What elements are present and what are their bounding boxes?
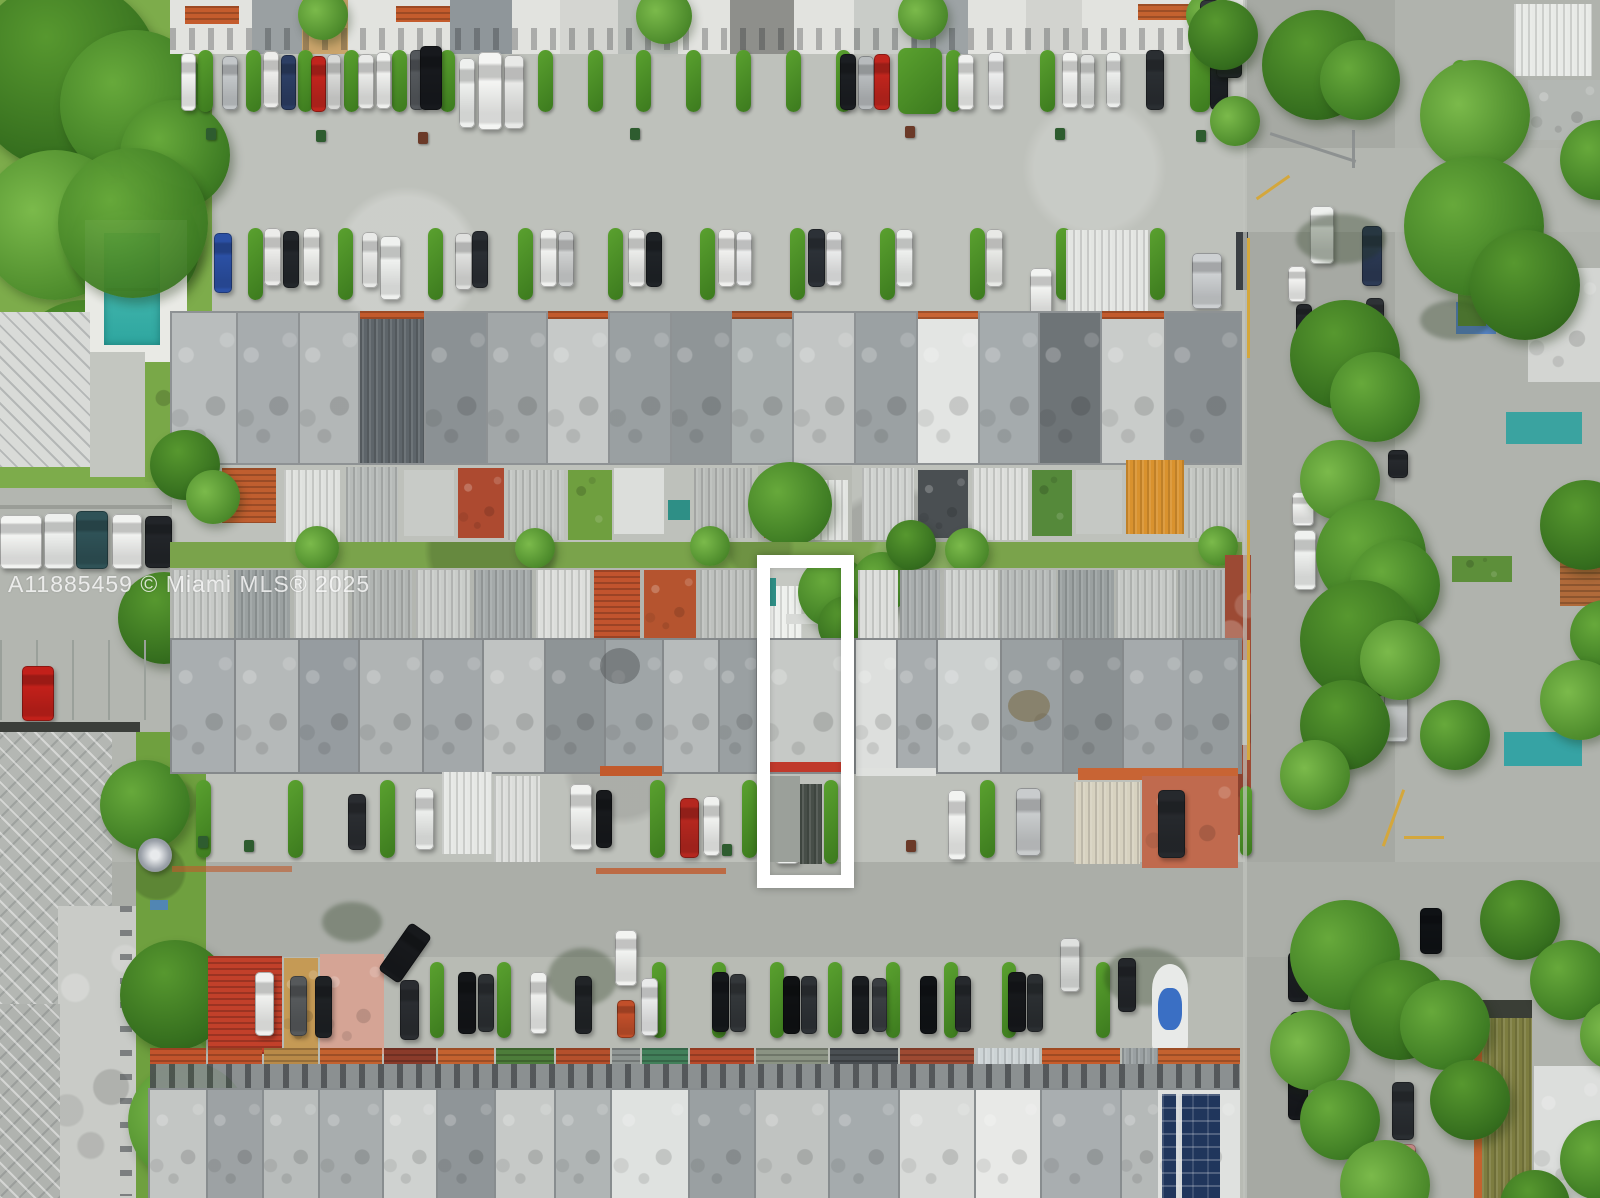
tree — [1280, 740, 1350, 810]
roof — [980, 313, 1038, 463]
car — [112, 514, 142, 569]
yard-structure — [346, 467, 398, 543]
tree — [945, 528, 989, 572]
hedge — [828, 962, 842, 1038]
roof — [424, 640, 482, 772]
roof — [1064, 640, 1122, 772]
hedge — [742, 780, 757, 858]
roof — [300, 313, 358, 463]
roof — [720, 640, 756, 772]
car — [617, 1000, 635, 1038]
roof — [732, 313, 792, 463]
roof — [756, 1090, 828, 1198]
car — [986, 229, 1003, 287]
hedge — [970, 228, 985, 300]
car — [504, 55, 524, 129]
tree — [748, 462, 832, 546]
roof — [172, 640, 234, 772]
car — [558, 231, 574, 287]
yard-structure — [972, 468, 1028, 540]
car — [303, 228, 320, 286]
carport-tan — [1074, 782, 1140, 864]
roof — [320, 1090, 382, 1198]
tile-roof-strip — [384, 1048, 436, 1064]
tile-roof-strip — [438, 1048, 494, 1064]
car — [712, 972, 729, 1032]
hedge — [440, 50, 455, 112]
car — [703, 796, 720, 856]
roof — [664, 640, 718, 772]
roof — [856, 640, 896, 772]
curb-shadow — [0, 722, 140, 732]
car — [826, 231, 842, 286]
tile-roof-strip — [360, 311, 424, 319]
hedge — [980, 780, 995, 858]
car — [311, 56, 326, 112]
tree — [690, 526, 730, 566]
solar-gap — [1176, 1094, 1182, 1198]
yard-structure — [944, 570, 998, 638]
car — [376, 52, 391, 109]
tile-roof-strip — [732, 311, 792, 319]
yellow-shed — [1126, 460, 1184, 534]
car — [400, 980, 419, 1040]
eave-strip — [856, 768, 936, 776]
tree — [886, 520, 936, 570]
car — [327, 54, 341, 110]
roof — [900, 1090, 974, 1198]
tree — [1330, 352, 1420, 442]
yard-structure — [536, 570, 590, 638]
car — [263, 51, 279, 108]
carport — [1066, 230, 1148, 322]
car — [1062, 52, 1078, 108]
tile-roof-strip — [830, 1048, 898, 1064]
tile-roof-strip — [918, 311, 978, 319]
tarp — [150, 900, 168, 910]
roof — [1042, 1090, 1120, 1198]
tile-roof-strip — [976, 1048, 1040, 1064]
car — [22, 666, 54, 721]
roof — [150, 1090, 206, 1198]
car — [718, 229, 735, 287]
hedge — [538, 50, 553, 112]
roof — [236, 640, 298, 772]
roof — [1040, 313, 1100, 463]
car — [380, 236, 401, 300]
yard-structure — [1076, 470, 1122, 534]
terracotta-pad — [1142, 776, 1238, 868]
hedge — [608, 228, 623, 300]
hedge — [1040, 50, 1055, 112]
yard-structure — [668, 500, 690, 520]
tree-shadow — [1296, 214, 1386, 264]
car — [840, 54, 856, 110]
curb-paint — [596, 868, 726, 874]
yard-structure — [858, 570, 898, 638]
trash-bin — [722, 844, 732, 856]
roof — [264, 1090, 318, 1198]
tile-roof-strip — [208, 1048, 262, 1064]
hedge — [700, 228, 715, 300]
car — [348, 794, 366, 850]
yard-green — [1032, 470, 1072, 536]
hedge — [428, 228, 443, 300]
car — [530, 972, 547, 1034]
yard-structure — [614, 468, 664, 534]
trash-bin — [630, 128, 640, 140]
roof — [426, 313, 486, 463]
tile-roof-strip — [548, 311, 608, 319]
boat-cover — [1158, 988, 1182, 1030]
roof — [938, 640, 1000, 772]
car — [948, 790, 966, 860]
car — [458, 972, 476, 1034]
tree — [58, 148, 208, 298]
car — [680, 798, 699, 858]
yard-green — [568, 470, 612, 540]
tile-roof-strip — [1102, 311, 1164, 319]
tree — [1320, 40, 1400, 120]
trash-bin — [206, 128, 216, 140]
yellow-curb — [1404, 836, 1444, 839]
hedge-strip — [1452, 556, 1512, 582]
hedge — [886, 962, 900, 1038]
tile-roof-strip — [1158, 1048, 1240, 1064]
tile-roof-strip — [600, 766, 662, 776]
car — [459, 58, 475, 128]
car — [1420, 908, 1442, 954]
car — [214, 233, 232, 293]
car — [730, 974, 746, 1032]
hedge — [898, 48, 942, 114]
car — [1118, 958, 1136, 1012]
roof — [496, 1090, 554, 1198]
hedge — [246, 50, 261, 112]
yard-structure — [1116, 570, 1176, 638]
car — [628, 229, 645, 287]
tile-roof-strip — [320, 1048, 382, 1064]
roof — [488, 313, 546, 463]
car — [596, 790, 612, 848]
roof — [208, 1090, 262, 1198]
car — [920, 976, 937, 1034]
tree — [1430, 1060, 1510, 1140]
carport — [442, 772, 492, 854]
tile-roof-strip — [396, 6, 450, 22]
roof — [1124, 640, 1182, 772]
car — [472, 231, 488, 288]
trash-bin — [906, 840, 916, 852]
aerial-photo: A11885459 © Miami MLS® 2025 — [0, 0, 1600, 1198]
car — [1288, 266, 1306, 302]
roof-stain — [1008, 690, 1050, 722]
hedge — [288, 780, 303, 858]
tree — [1420, 700, 1490, 770]
tree — [295, 526, 339, 570]
tile-roof-strip — [756, 1048, 828, 1064]
tile-roof-strip — [900, 1048, 974, 1064]
car — [1027, 974, 1043, 1032]
car — [858, 56, 874, 110]
yard-structure — [644, 570, 696, 638]
tile-roof-strip — [612, 1048, 640, 1064]
roof — [612, 1090, 688, 1198]
hedge — [786, 50, 801, 112]
roof — [1102, 313, 1164, 463]
white-corrugated-building — [1514, 4, 1592, 76]
tree — [1530, 940, 1600, 1020]
hedge — [686, 50, 701, 112]
trash-bin — [905, 126, 915, 138]
car — [44, 513, 74, 569]
car — [1388, 450, 1408, 478]
carport — [494, 776, 540, 862]
tile-roof-strip — [1042, 1048, 1120, 1064]
tree — [515, 528, 555, 568]
roof-stain — [600, 648, 640, 684]
roof — [794, 313, 854, 463]
car — [988, 52, 1004, 110]
roof — [484, 640, 544, 772]
curb-paint — [172, 866, 292, 872]
trash-bin — [1055, 128, 1065, 140]
car — [358, 54, 374, 109]
hedge — [770, 962, 784, 1038]
car — [570, 784, 592, 850]
yard-structure — [1058, 570, 1114, 638]
car — [290, 976, 307, 1036]
car — [315, 976, 332, 1038]
hedge — [430, 962, 444, 1038]
roof — [384, 1090, 436, 1198]
hedge — [344, 50, 359, 112]
tree-shadow — [322, 902, 382, 942]
car — [955, 976, 971, 1032]
trash-bin — [198, 836, 208, 848]
car — [455, 233, 472, 290]
teal-canopy — [1506, 412, 1582, 444]
hedge — [588, 50, 603, 112]
tree — [186, 470, 240, 524]
car — [783, 976, 800, 1034]
car — [736, 231, 752, 286]
roof — [556, 1090, 610, 1198]
hedge — [790, 228, 805, 300]
car — [575, 976, 592, 1034]
hedge — [248, 228, 263, 300]
tile-roof-strip — [150, 1048, 206, 1064]
car — [181, 53, 196, 111]
hedge — [392, 50, 407, 112]
trash-bin — [418, 132, 428, 144]
car — [1106, 52, 1121, 108]
roof — [690, 1090, 754, 1198]
car — [478, 974, 494, 1032]
car — [872, 978, 887, 1032]
curb — [0, 505, 172, 509]
roof — [300, 640, 358, 772]
yellow-curb — [1247, 640, 1250, 760]
car — [896, 229, 913, 287]
car — [1192, 253, 1222, 309]
tree — [1210, 96, 1260, 146]
tile-roof-strip — [556, 1048, 610, 1064]
car — [478, 52, 502, 130]
yard-structure — [900, 570, 940, 638]
tile-roof-strip — [185, 6, 239, 24]
roof — [918, 313, 978, 463]
roof — [360, 640, 422, 772]
roof — [610, 313, 670, 463]
car — [0, 515, 42, 569]
yellow-curb — [1247, 238, 1250, 358]
hedge — [636, 50, 651, 112]
roof — [672, 313, 730, 463]
tree — [1470, 230, 1580, 340]
roof — [898, 640, 936, 772]
yard-structure — [1000, 570, 1056, 638]
roof — [830, 1090, 898, 1198]
yard-structure — [404, 470, 454, 536]
car — [1146, 50, 1164, 110]
yard-structure — [458, 468, 504, 538]
hedge — [736, 50, 751, 112]
yellow-curb — [1247, 520, 1250, 600]
roof — [1166, 313, 1240, 463]
hedge — [198, 50, 213, 112]
yard-structure — [594, 570, 640, 638]
roof — [438, 1090, 494, 1198]
car — [1008, 972, 1026, 1032]
roof — [856, 313, 916, 463]
apartment-windows — [120, 906, 132, 1196]
walkway — [90, 352, 145, 477]
hedge — [650, 780, 665, 858]
roof — [548, 313, 608, 463]
clubhouse-roof — [0, 312, 90, 467]
street-light-pole — [1352, 130, 1355, 168]
hedge — [497, 962, 511, 1038]
mls-watermark: A11885459 © Miami MLS® 2025 — [8, 571, 370, 598]
roof — [546, 640, 604, 772]
trash-bin — [316, 130, 326, 142]
car — [145, 516, 172, 568]
yard-structure — [416, 570, 470, 638]
tree — [1400, 980, 1490, 1070]
car — [76, 511, 108, 569]
car — [281, 55, 296, 110]
roof — [1122, 1090, 1158, 1198]
property-highlight-rectangle — [757, 555, 854, 888]
roof — [1184, 640, 1238, 772]
apartment-roof-lower — [0, 1004, 60, 1198]
tree — [1270, 1010, 1350, 1090]
roof — [238, 313, 298, 463]
car — [646, 232, 662, 287]
tile-roof-strip — [496, 1048, 554, 1064]
car — [958, 54, 974, 110]
car — [641, 978, 658, 1036]
car — [420, 46, 442, 110]
car — [362, 232, 378, 288]
hedge — [338, 228, 353, 300]
hedge — [880, 228, 895, 300]
tree — [1420, 60, 1530, 170]
roof — [976, 1090, 1040, 1198]
tile-roof-strip — [1122, 1048, 1158, 1064]
car — [801, 976, 817, 1034]
car — [264, 228, 281, 286]
facade-band — [150, 1064, 1240, 1090]
trash-bin — [244, 840, 254, 852]
patio-umbrella — [138, 838, 172, 872]
car — [1158, 790, 1185, 858]
tile-roof-strip — [690, 1048, 754, 1064]
yard-structure — [474, 570, 532, 638]
hedge — [380, 780, 395, 858]
car — [1294, 530, 1316, 590]
roof — [360, 313, 424, 463]
car — [540, 229, 557, 287]
tile-roof-strip — [642, 1048, 688, 1064]
hedge — [1150, 228, 1165, 300]
yard-structure — [700, 570, 754, 638]
car — [874, 54, 890, 110]
hedge — [518, 228, 533, 300]
car — [1392, 1082, 1414, 1140]
car — [615, 930, 637, 986]
solar-panels — [1162, 1094, 1220, 1198]
car — [1016, 788, 1041, 856]
trash-bin — [1196, 130, 1206, 142]
car — [283, 231, 299, 288]
car — [808, 229, 825, 287]
car — [1080, 54, 1095, 109]
car — [255, 972, 274, 1036]
car — [415, 788, 434, 850]
tree — [1188, 0, 1258, 70]
car — [1060, 938, 1080, 992]
car — [222, 56, 238, 110]
tile-roof-strip — [264, 1048, 318, 1064]
car — [852, 976, 869, 1034]
